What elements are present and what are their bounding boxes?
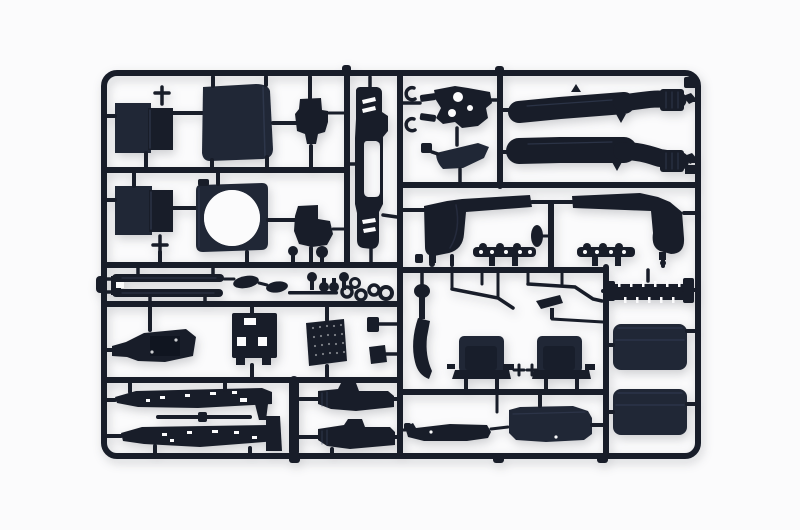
part-seat-right <box>527 272 595 392</box>
part-exhaust-pipe-upper <box>502 84 697 123</box>
part-chassis-rail-upper <box>107 380 272 420</box>
part-gearbox-half-upper <box>300 383 400 411</box>
part-cab-step-panel <box>403 394 508 441</box>
part-radiator-core-lower <box>107 173 196 265</box>
part-front-axle-rod <box>158 412 250 422</box>
part-exhaust-pipe-lower <box>502 142 698 174</box>
sprue-illustration <box>0 0 800 530</box>
part-cab-rear-panel <box>202 77 297 170</box>
sprue-photo <box>0 0 800 530</box>
part-rear-wall-panel <box>606 389 695 435</box>
part-tread-plate <box>306 305 347 380</box>
part-ladder-frame-upright <box>347 77 397 265</box>
part-ring-set <box>342 279 392 301</box>
part-sun-visor <box>432 143 489 185</box>
part-intercooler-ribbed-bar <box>603 270 695 303</box>
part-small-foot <box>415 254 423 263</box>
part-gearbox-half-lower <box>299 419 400 454</box>
part-clamp-hooks <box>406 88 415 131</box>
part-radiator-core-upper <box>107 87 203 170</box>
part-gear-lever <box>413 272 432 379</box>
part-mudguard-bracket-strip-left <box>473 243 536 266</box>
part-mirror-housing-small <box>265 280 288 294</box>
part-mirror-housing-large <box>224 274 267 290</box>
part-cab-floor-bracket <box>232 304 277 380</box>
part-mudguard-bracket-strip-right <box>577 243 635 266</box>
part-engine-mount-bracket <box>295 77 347 170</box>
part-suspension-bracket <box>403 86 500 153</box>
part-roof-panel <box>606 324 695 370</box>
part-chassis-rail-lower <box>107 416 282 453</box>
part-side-bracket-pair <box>367 317 397 364</box>
part-wiper-arm-right <box>528 272 602 301</box>
part-rear-fender <box>509 394 603 442</box>
part-pin-set <box>288 246 349 295</box>
part-engine-block <box>107 305 196 362</box>
part-fan-shroud-ring <box>196 173 295 265</box>
part-bumper-loop <box>107 267 224 302</box>
